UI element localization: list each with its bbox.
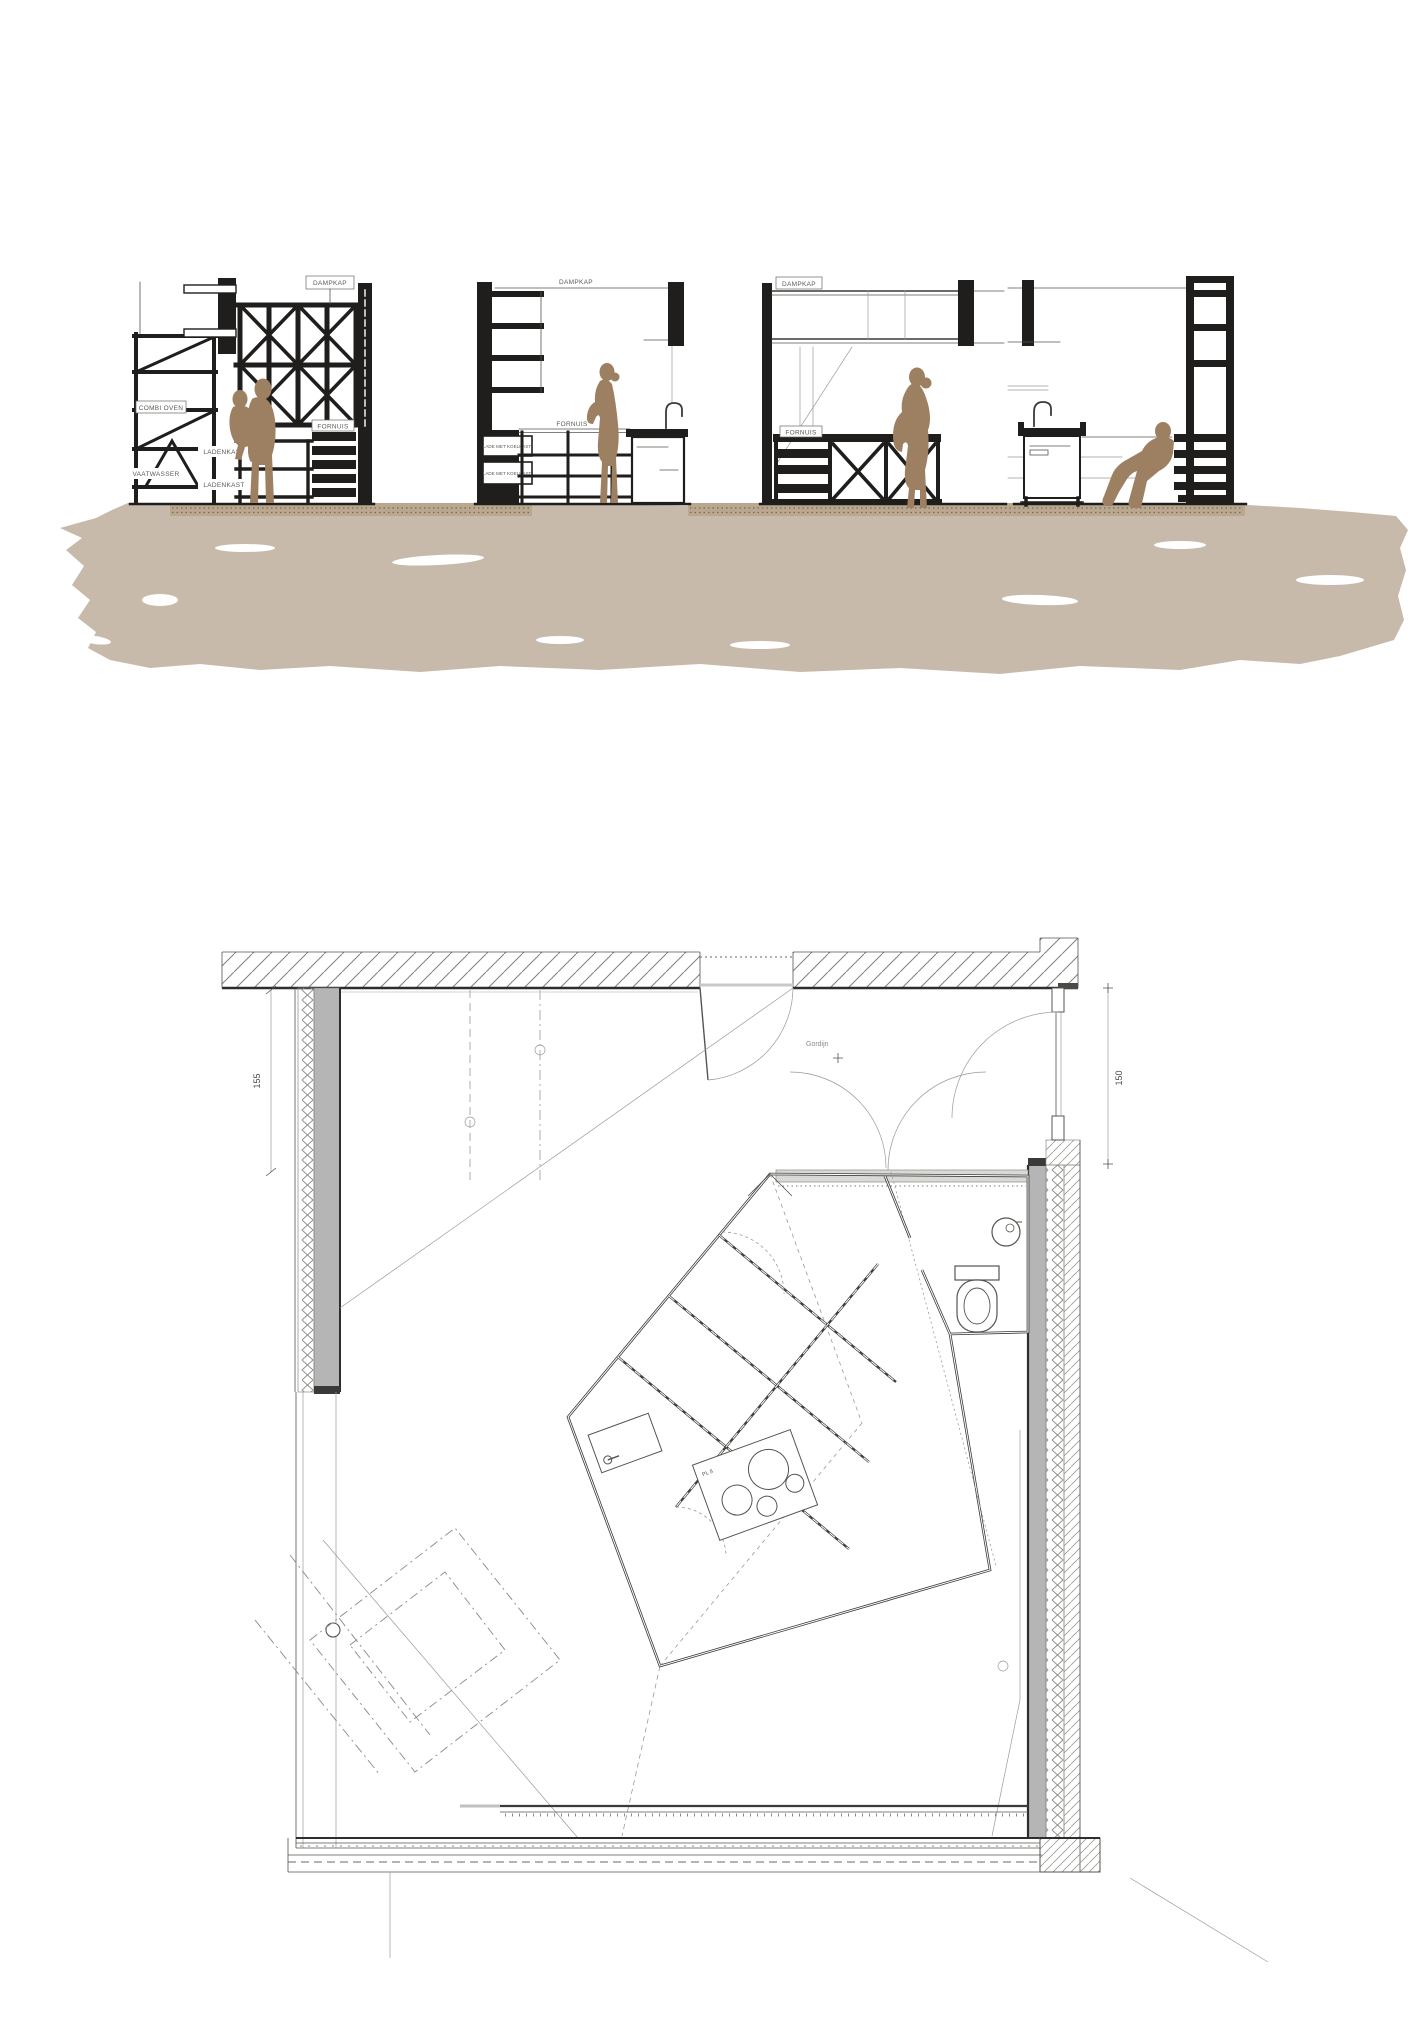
bottom-wall bbox=[288, 1838, 1100, 1872]
faucet bbox=[1034, 402, 1051, 426]
shelf-tower bbox=[1174, 276, 1234, 505]
toilet bbox=[955, 1266, 999, 1332]
door-swing-arc bbox=[952, 1012, 1058, 1118]
plank bbox=[184, 285, 236, 293]
left-dimension: 155 bbox=[252, 986, 276, 1176]
floor-plan: 155 150 Gordijn bbox=[222, 938, 1268, 1962]
fornuis-label: FORNUIS bbox=[317, 424, 349, 431]
upper-cabinet-lines bbox=[772, 291, 962, 343]
ladenkast-label: LADENKAST bbox=[203, 482, 244, 489]
dampkap-label: DAMPKAP bbox=[782, 281, 816, 288]
kitchen-unit-plan: PL 8 bbox=[568, 1170, 1028, 1836]
column bbox=[958, 280, 974, 346]
cooktop: PL 8 bbox=[692, 1430, 817, 1541]
dimension-155: 155 bbox=[252, 1073, 262, 1088]
ground-wash bbox=[60, 503, 1408, 674]
column bbox=[1022, 280, 1034, 346]
column bbox=[668, 282, 684, 346]
combi-oven-label: COMBI OVEN bbox=[139, 405, 184, 412]
door-swing-arc bbox=[708, 988, 793, 1080]
fornuis-label: FORNUIS bbox=[556, 421, 588, 428]
sink-cabinet bbox=[1024, 436, 1080, 498]
section-elevation-3: DAMPKAP FORNUIS bbox=[760, 277, 1006, 508]
dampkap-label: DAMPKAP bbox=[559, 279, 593, 286]
right-door bbox=[952, 988, 1064, 1140]
architectural-sheet: DAMPKAP COMBI OVEN VAATWASSER LADENKAST … bbox=[0, 0, 1428, 2028]
section-elevation-4 bbox=[1008, 276, 1246, 508]
figure-lounging-person bbox=[1102, 422, 1174, 508]
dashed-floor-layout bbox=[255, 1528, 560, 1775]
figure-standing-woman bbox=[587, 363, 620, 503]
left-wall bbox=[295, 988, 340, 1848]
koelkast-drawer-label: LADE MET KOELKAST bbox=[483, 444, 532, 449]
section-elevation-2: DAMPKAP LADE MET KOELKAST LADE MET KOELK… bbox=[475, 279, 690, 504]
post bbox=[762, 283, 772, 504]
top-wall bbox=[222, 938, 1078, 992]
unit-sink bbox=[588, 1413, 662, 1472]
right-wall bbox=[1028, 1140, 1080, 1872]
wall-shelves bbox=[492, 294, 541, 390]
faucet bbox=[666, 403, 682, 428]
section-elevation-1: DAMPKAP COMBI OVEN VAATWASSER LADENKAST … bbox=[130, 276, 374, 504]
ground-brush-band bbox=[60, 503, 1408, 674]
drawer-stack bbox=[778, 449, 828, 493]
door-annotation: Gordijn bbox=[806, 1041, 829, 1048]
washbasin bbox=[992, 1218, 1022, 1246]
fornuis-label: FORNUIS bbox=[785, 430, 817, 437]
drawer-stack bbox=[312, 432, 356, 497]
dampkap-label: DAMPKAP bbox=[313, 280, 347, 287]
bench-rail bbox=[460, 1806, 1028, 1815]
projection-lines bbox=[323, 988, 1020, 1838]
window-handle bbox=[326, 1623, 340, 1637]
counter-top bbox=[626, 429, 688, 437]
counter-top bbox=[1020, 428, 1084, 436]
dimension-150: 150 bbox=[1114, 1070, 1124, 1085]
right-dimension: 150 bbox=[1103, 983, 1124, 1169]
plank bbox=[184, 329, 236, 337]
leader-line bbox=[1130, 1878, 1268, 1962]
vaatwasser-label: VAATWASSER bbox=[133, 471, 180, 478]
entrance-door: Gordijn bbox=[700, 988, 843, 1080]
wc-partition bbox=[885, 1176, 950, 1334]
